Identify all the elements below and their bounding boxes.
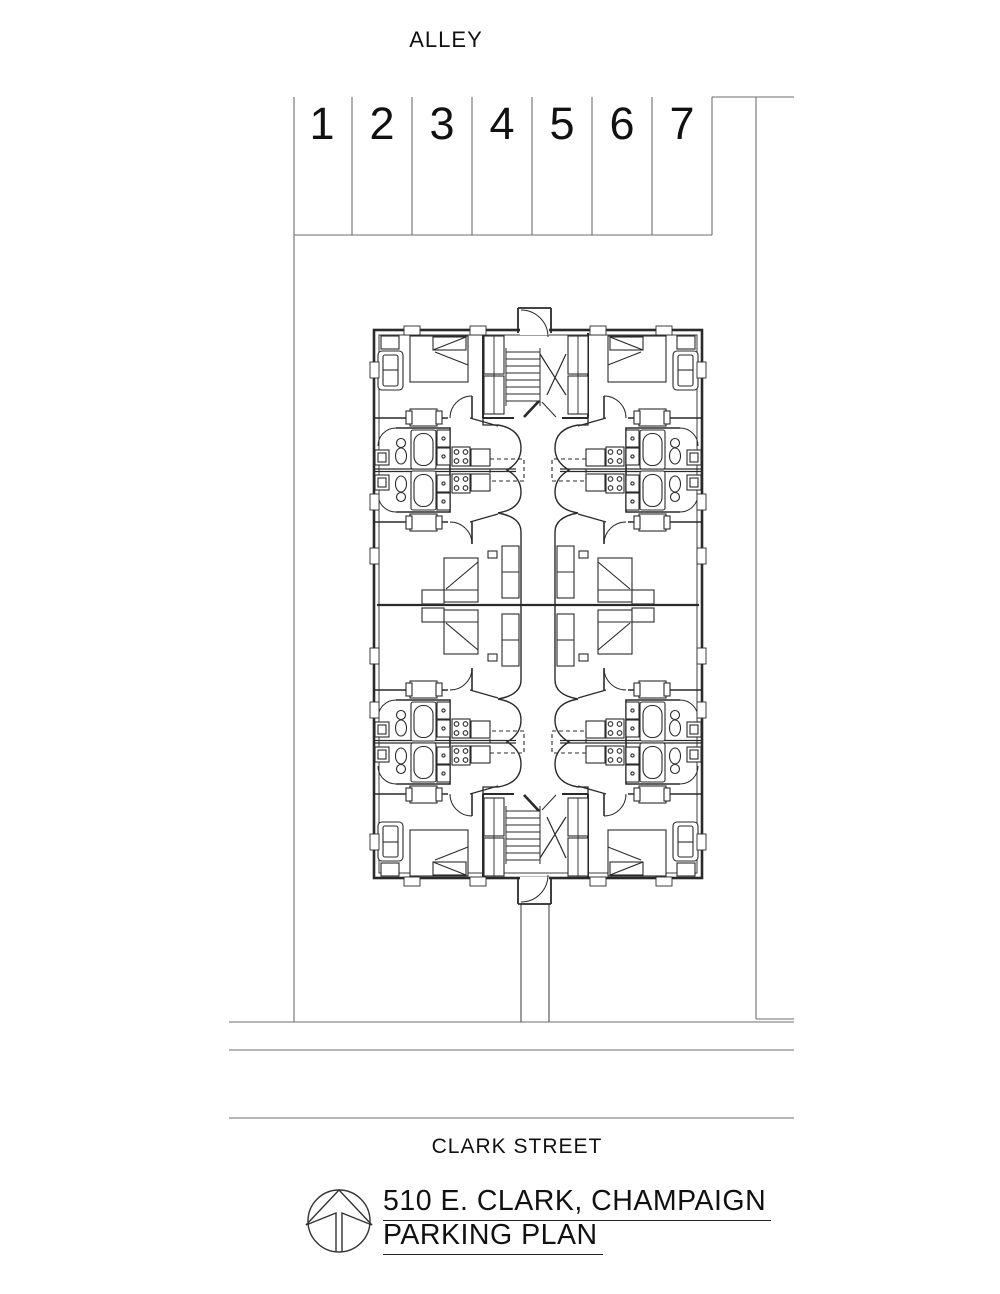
parking-stall-number-7: 7 xyxy=(652,98,712,150)
parking-stall-number-1: 1 xyxy=(292,98,352,150)
stair-core-top xyxy=(483,308,588,425)
property-boundary xyxy=(712,97,794,1019)
walkway xyxy=(521,904,549,1022)
alley-label: ALLEY xyxy=(346,27,546,53)
architect-logo-icon xyxy=(306,1190,372,1252)
floor-plan xyxy=(370,308,706,904)
parking-stall-number-5: 5 xyxy=(532,98,592,150)
parking-plan-sheet: ALLEY 1 2 3 4 5 6 7 CLARK STREET 510 E. … xyxy=(0,0,1000,1294)
parking-stall-number-4: 4 xyxy=(472,98,532,150)
parking-stall-number-3: 3 xyxy=(412,98,472,150)
street-curb-lines xyxy=(229,1022,794,1118)
clark-street-label: CLARK STREET xyxy=(407,1135,627,1159)
plan-drawing xyxy=(0,0,1000,1294)
site-lines xyxy=(229,97,794,1118)
sheet-title-plan-name: PARKING PLAN xyxy=(383,1221,603,1255)
stair-core-bottom xyxy=(483,787,588,904)
sheet-title-address: 510 E. CLARK, CHAMPAIGN xyxy=(383,1187,771,1221)
parking-stall-number-2: 2 xyxy=(352,98,412,150)
parking-stall-number-6: 6 xyxy=(592,98,652,150)
